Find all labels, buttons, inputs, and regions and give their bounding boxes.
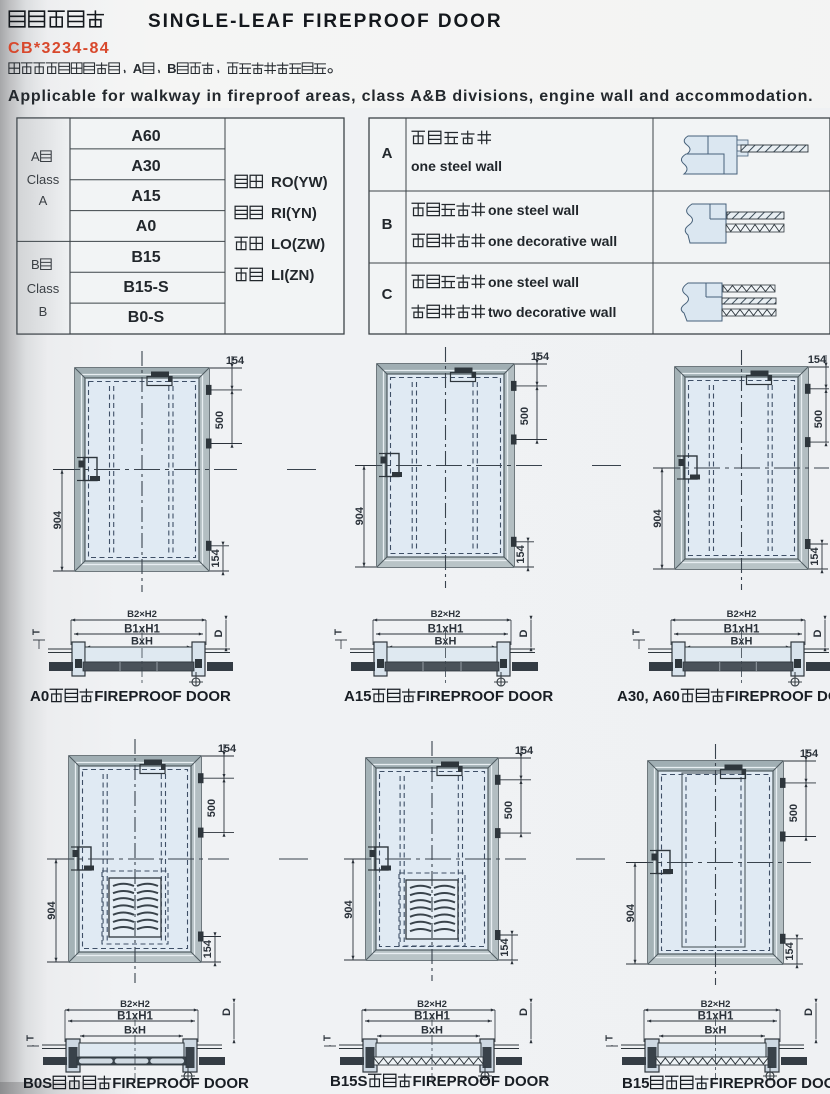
svg-text:one steel wall: one steel wall xyxy=(488,274,579,290)
svg-text:D: D xyxy=(518,629,530,637)
svg-text:LO(ZW): LO(ZW) xyxy=(271,236,325,253)
svg-text:RO(YW): RO(YW) xyxy=(271,174,328,191)
svg-text:500: 500 xyxy=(503,801,515,819)
svg-text:T: T xyxy=(334,629,345,635)
svg-text:A15: A15 xyxy=(131,188,160,205)
svg-text:FIREPROOF DOOR: FIREPROOF DOOR xyxy=(112,1075,249,1092)
svg-text:B2×H2: B2×H2 xyxy=(727,609,757,620)
svg-text:one steel wall: one steel wall xyxy=(488,202,579,218)
svg-text:Class: Class xyxy=(27,172,60,187)
svg-text:A: A xyxy=(133,61,143,76)
svg-text:D: D xyxy=(803,1008,815,1016)
svg-text:154: 154 xyxy=(800,748,819,760)
svg-text:A15: A15 xyxy=(344,688,372,705)
svg-text:B: B xyxy=(382,216,393,233)
svg-text:B2×H2: B2×H2 xyxy=(127,609,157,620)
svg-text:D: D xyxy=(812,629,824,637)
svg-text:904: 904 xyxy=(343,899,355,918)
svg-text:904: 904 xyxy=(46,900,58,919)
svg-text:CB*3234-84: CB*3234-84 xyxy=(8,40,110,57)
svg-text:SINGLE-LEAF FIREPROOF DOOR: SINGLE-LEAF FIREPROOF DOOR xyxy=(148,11,502,32)
svg-text:A0: A0 xyxy=(136,218,157,235)
svg-text:B: B xyxy=(31,257,40,272)
svg-text:A30: A30 xyxy=(131,158,160,175)
svg-text:FIREPROOF DOOR: FIREPROOF DOOR xyxy=(94,688,231,705)
svg-text:B15: B15 xyxy=(131,249,160,266)
svg-text:T: T xyxy=(32,629,43,635)
svg-text:B: B xyxy=(167,61,176,76)
svg-text:A0: A0 xyxy=(30,688,49,705)
svg-text:500: 500 xyxy=(214,411,226,429)
svg-text:B2×H2: B2×H2 xyxy=(431,609,461,620)
svg-text:FIREPROOF DO: FIREPROOF DO xyxy=(725,688,830,705)
svg-text:FIREPROOF DOOR: FIREPROOF DOOR xyxy=(413,1073,550,1090)
svg-text:Applicable for walkway in fire: Applicable for walkway in fireproof area… xyxy=(8,88,813,105)
svg-text:RI(YN): RI(YN) xyxy=(271,205,317,222)
svg-text:FIREPROOF DOOR: FIREPROOF DOOR xyxy=(417,688,554,705)
svg-text:LI(ZN): LI(ZN) xyxy=(271,267,314,284)
svg-text:one steel wall: one steel wall xyxy=(411,158,502,174)
svg-text:904: 904 xyxy=(625,903,637,922)
svg-text:T: T xyxy=(632,629,643,635)
svg-text:154: 154 xyxy=(531,351,550,363)
svg-text:Class: Class xyxy=(27,281,60,296)
svg-text:D: D xyxy=(221,1008,233,1016)
svg-text:B0-S: B0-S xyxy=(128,309,165,326)
svg-text:154: 154 xyxy=(784,941,796,960)
svg-text:C: C xyxy=(382,286,393,303)
svg-text:500: 500 xyxy=(813,410,825,428)
svg-text:500: 500 xyxy=(519,407,531,425)
svg-text:A: A xyxy=(39,193,48,208)
svg-text:FIREPROOF DOO: FIREPROOF DOO xyxy=(710,1075,830,1092)
svg-text:154: 154 xyxy=(218,743,237,755)
svg-text:154: 154 xyxy=(210,548,222,567)
svg-text:B2×H2: B2×H2 xyxy=(417,999,447,1010)
svg-text:B15S: B15S xyxy=(330,1073,368,1090)
svg-text:one decorative wall: one decorative wall xyxy=(488,233,617,249)
svg-text:A: A xyxy=(382,145,393,162)
svg-text:D: D xyxy=(518,1008,530,1016)
svg-text:B0S: B0S xyxy=(23,1075,52,1092)
svg-text:T: T xyxy=(26,1035,37,1041)
svg-text:154: 154 xyxy=(515,544,527,563)
svg-text:two decorative wall: two decorative wall xyxy=(488,304,616,320)
svg-text:B15-S: B15-S xyxy=(123,279,169,296)
svg-text:A30, A60: A30, A60 xyxy=(617,688,680,705)
svg-text:500: 500 xyxy=(788,804,800,822)
svg-text:154: 154 xyxy=(226,355,245,367)
svg-text:A: A xyxy=(31,149,40,164)
svg-text:B15: B15 xyxy=(622,1075,650,1092)
svg-text:154: 154 xyxy=(808,354,827,366)
svg-text:D: D xyxy=(213,629,225,637)
svg-text:A60: A60 xyxy=(131,128,160,145)
svg-text:B2×H2: B2×H2 xyxy=(120,999,150,1010)
svg-text:500: 500 xyxy=(206,799,218,817)
svg-text:T: T xyxy=(605,1035,616,1041)
svg-text:T: T xyxy=(323,1035,334,1041)
svg-text:154: 154 xyxy=(202,939,214,958)
svg-text:904: 904 xyxy=(52,510,64,529)
svg-text:904: 904 xyxy=(354,506,366,525)
svg-text:B2×H2: B2×H2 xyxy=(701,999,731,1010)
svg-text:154: 154 xyxy=(809,546,821,565)
svg-text:154: 154 xyxy=(499,937,511,956)
svg-text:904: 904 xyxy=(652,508,664,527)
svg-text:154: 154 xyxy=(515,745,534,757)
svg-text:B: B xyxy=(39,304,48,319)
